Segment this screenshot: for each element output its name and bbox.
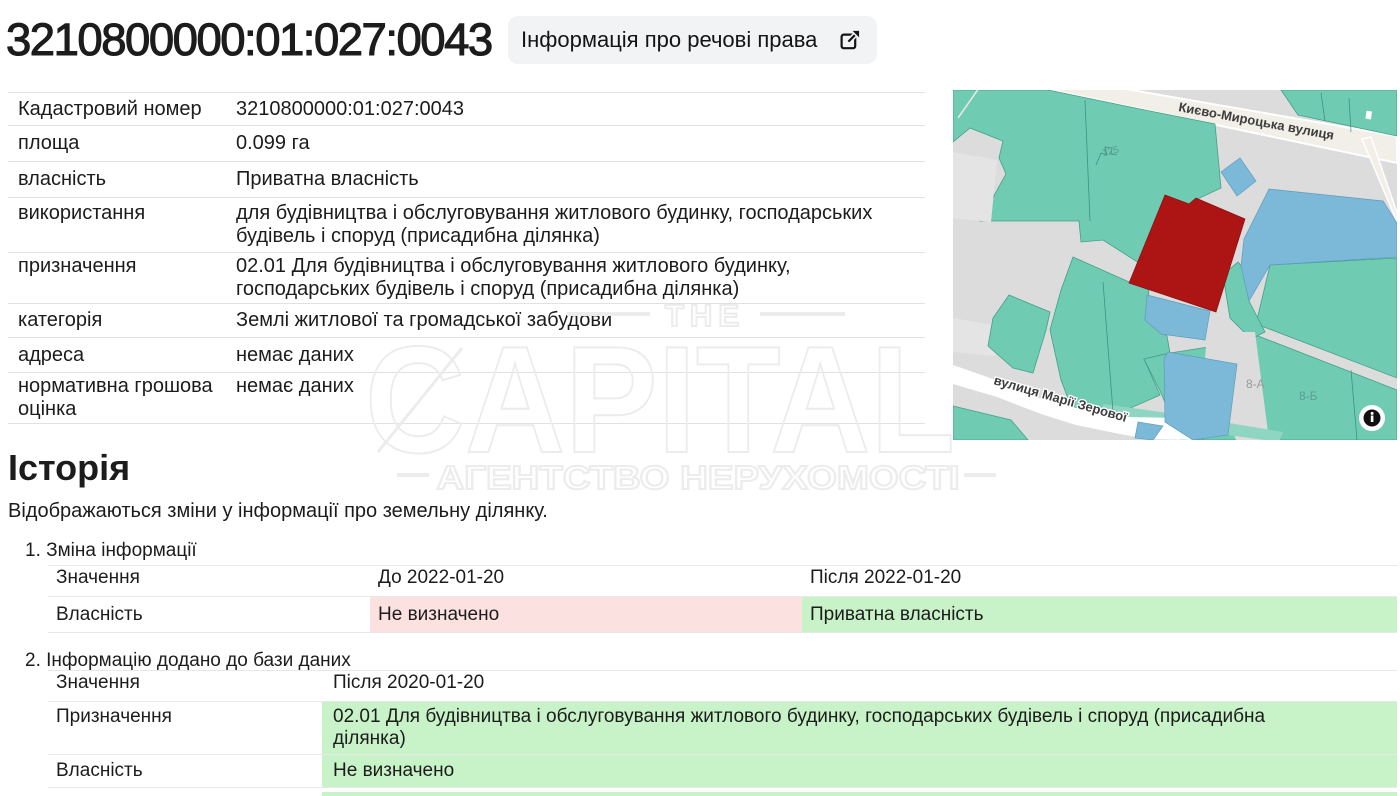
svg-text:8-Б: 8-Б bbox=[1299, 389, 1318, 403]
svg-text:8-А: 8-А bbox=[1246, 377, 1265, 391]
svg-text:АГЕНТСТВО НЕРУХОМОСТІ: АГЕНТСТВО НЕРУХОМОСТІ bbox=[437, 459, 960, 496]
